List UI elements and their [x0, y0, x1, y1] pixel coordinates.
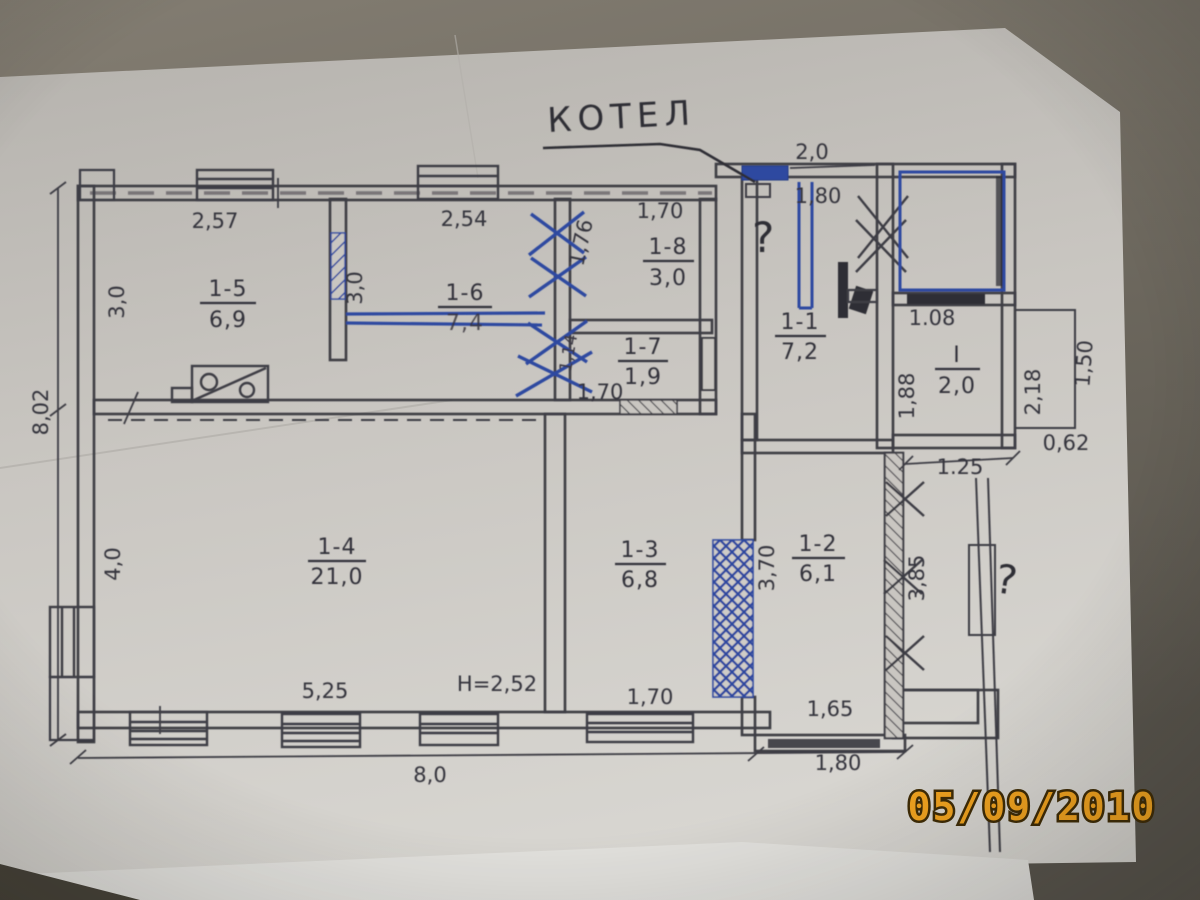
photo-of-floor-plan: КОТЕЛ ? ? 1-5 6,9 1-6 7,4 1-8 3,0 1-7: [0, 0, 1200, 900]
floor-plan-photo: КОТЕЛ ? ? 1-5 6,9 1-6 7,4 1-8 3,0 1-7: [0, 0, 1200, 900]
vignette-overlay: [0, 0, 1200, 900]
